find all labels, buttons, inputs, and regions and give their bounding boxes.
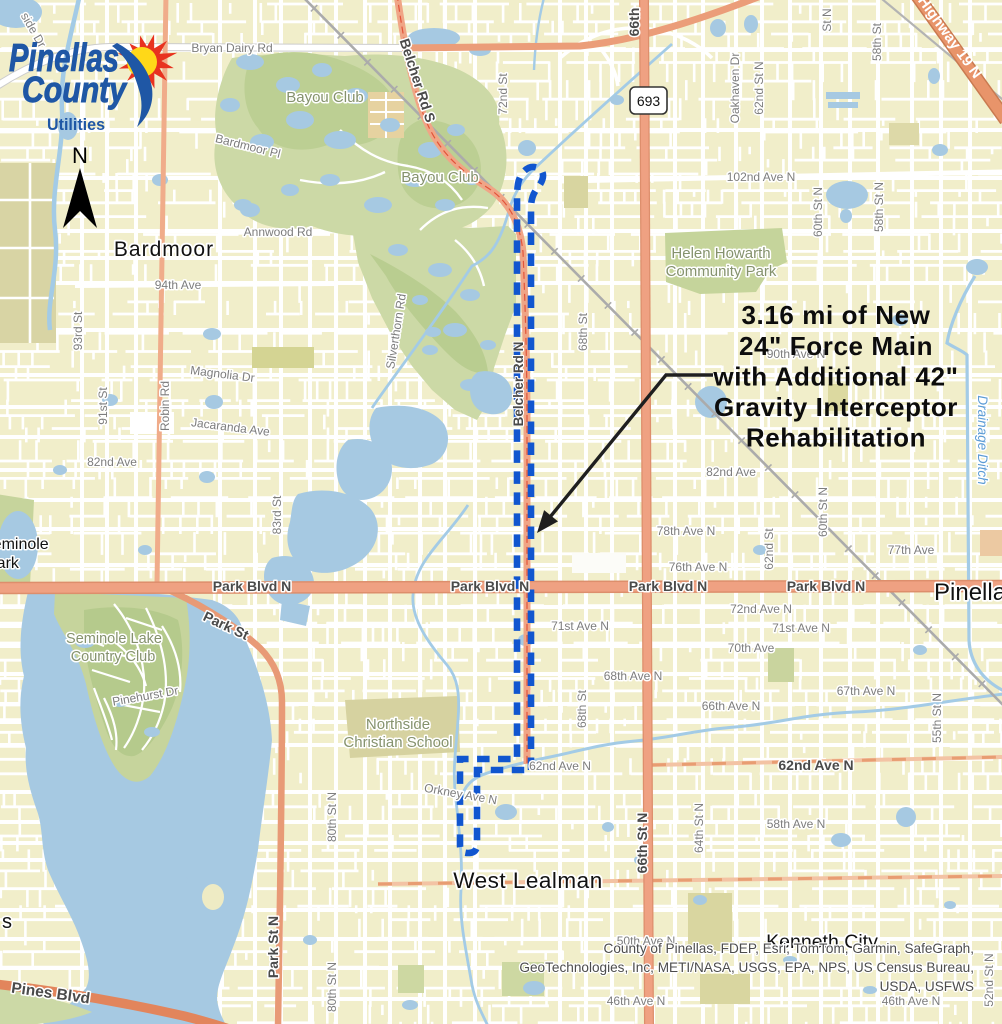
- svg-text:76th Ave N: 76th Ave N: [669, 560, 728, 574]
- svg-text:46th Ave N: 46th Ave N: [882, 994, 941, 1008]
- svg-text:66th St N: 66th St N: [634, 813, 650, 874]
- svg-text:Christian School: Christian School: [343, 734, 452, 751]
- svg-text:71st Ave N: 71st Ave N: [772, 621, 830, 635]
- svg-text:s: s: [2, 911, 12, 933]
- svg-text:80th St N: 80th St N: [325, 792, 339, 842]
- svg-text:72nd St: 72nd St: [496, 73, 510, 115]
- svg-text:Northside: Northside: [366, 716, 430, 733]
- svg-text:USDA, USFWS: USDA, USFWS: [880, 979, 974, 994]
- svg-text:Bardmoor: Bardmoor: [114, 238, 214, 261]
- svg-text:82nd Ave: 82nd Ave: [87, 455, 137, 469]
- svg-text:70th Ave: 70th Ave: [728, 641, 775, 655]
- svg-text:County of Pinellas, FDEP, Esri: County of Pinellas, FDEP, Esri, TomTom, …: [604, 941, 974, 956]
- svg-text:Annwood Rd: Annwood Rd: [244, 225, 313, 239]
- svg-text:68th St: 68th St: [575, 689, 589, 728]
- svg-text:71st Ave N: 71st Ave N: [551, 619, 609, 633]
- svg-text:64th St N: 64th St N: [692, 803, 706, 853]
- svg-text:GeoTechnologies, Inc, METI/NAS: GeoTechnologies, Inc, METI/NASA, USGS, E…: [519, 960, 974, 975]
- svg-text:83rd St: 83rd St: [270, 495, 284, 534]
- svg-text:58th Ave N: 58th Ave N: [767, 817, 826, 831]
- svg-text:N: N: [72, 143, 88, 168]
- svg-text:Park Blvd N: Park Blvd N: [451, 578, 530, 594]
- svg-text:Drainage Ditch: Drainage Ditch: [975, 395, 990, 484]
- svg-text:Pinellas: Pinellas: [934, 579, 1002, 606]
- svg-text:Community Park: Community Park: [666, 263, 777, 280]
- svg-text:58th St N: 58th St N: [872, 182, 886, 232]
- svg-text:78th Ave N: 78th Ave N: [657, 524, 716, 538]
- svg-text:3.16 mi of New24" Force Mainwi: 3.16 mi of New24" Force Mainwith Additio…: [712, 300, 958, 453]
- svg-text:County: County: [22, 69, 128, 110]
- svg-text:80th St N: 80th St N: [325, 962, 339, 1012]
- svg-text:Belcher Rd N: Belcher Rd N: [511, 342, 526, 427]
- svg-text:52nd St N: 52nd St N: [982, 953, 996, 1006]
- svg-text:Park Blvd N: Park Blvd N: [787, 578, 866, 594]
- svg-text:St N: St N: [820, 8, 834, 31]
- svg-text:Oakhaven Dr: Oakhaven Dr: [728, 53, 742, 124]
- svg-text:Bryan Dairy Rd: Bryan Dairy Rd: [191, 41, 272, 55]
- svg-text:Helen Howarth: Helen Howarth: [671, 245, 770, 262]
- svg-text:West Lealman: West Lealman: [453, 868, 602, 893]
- svg-text:Bayou Club: Bayou Club: [401, 169, 479, 186]
- svg-text:62nd Ave N: 62nd Ave N: [529, 759, 591, 773]
- svg-text:66th Ave N: 66th Ave N: [702, 699, 761, 713]
- svg-text:Park St N: Park St N: [265, 916, 281, 978]
- svg-text:Country Club: Country Club: [71, 649, 156, 665]
- svg-text:68th Ave N: 68th Ave N: [604, 669, 663, 683]
- svg-text:55th St N: 55th St N: [930, 693, 944, 743]
- svg-text:Utilities: Utilities: [47, 115, 105, 134]
- svg-text:68th St: 68th St: [576, 312, 590, 351]
- svg-text:46th Ave N: 46th Ave N: [607, 994, 666, 1008]
- svg-text:72nd Ave N: 72nd Ave N: [730, 602, 792, 616]
- svg-text:Park Blvd N: Park Blvd N: [213, 578, 292, 594]
- svg-text:Seminole: Seminole: [0, 536, 49, 553]
- svg-text:66th: 66th: [626, 8, 642, 37]
- svg-text:Park: Park: [0, 555, 20, 572]
- svg-text:77th Ave: 77th Ave: [888, 543, 935, 557]
- svg-text:62nd Ave N: 62nd Ave N: [778, 757, 853, 773]
- svg-text:82nd Ave: 82nd Ave: [706, 465, 756, 479]
- svg-text:62nd St N: 62nd St N: [752, 61, 766, 114]
- svg-text:Seminole Lake: Seminole Lake: [66, 631, 162, 647]
- svg-text:102nd Ave N: 102nd Ave N: [727, 170, 796, 184]
- svg-text:60th St N: 60th St N: [811, 187, 825, 237]
- svg-text:60th St N: 60th St N: [816, 487, 830, 537]
- svg-text:62nd St: 62nd St: [762, 528, 776, 570]
- svg-text:693: 693: [637, 93, 661, 109]
- svg-text:91st St: 91st St: [96, 387, 110, 425]
- svg-text:Bayou Club: Bayou Club: [286, 89, 364, 106]
- svg-text:93rd St: 93rd St: [71, 311, 85, 350]
- svg-text:Robin Rd: Robin Rd: [158, 381, 172, 431]
- svg-text:94th Ave: 94th Ave: [155, 278, 202, 292]
- svg-text:58th St: 58th St: [870, 22, 884, 61]
- svg-text:Park Blvd N: Park Blvd N: [629, 578, 708, 594]
- svg-text:67th Ave N: 67th Ave N: [837, 684, 896, 698]
